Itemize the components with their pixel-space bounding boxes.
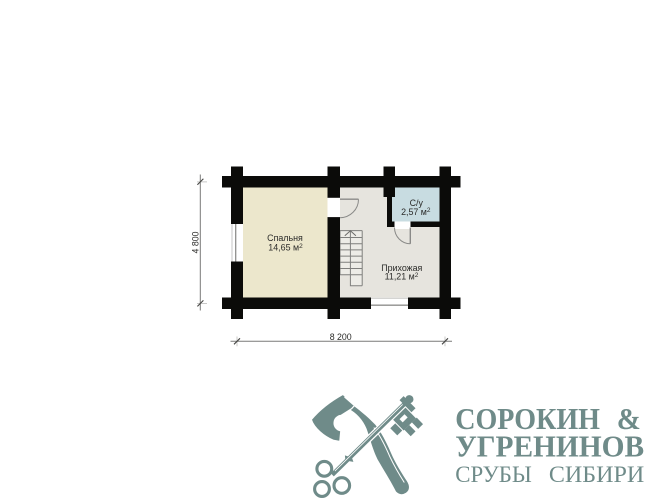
svg-text:Спальня: Спальня: [267, 233, 303, 243]
svg-text:11,21 м2: 11,21 м2: [385, 272, 419, 282]
svg-text:2,57 м2: 2,57 м2: [401, 207, 431, 217]
svg-text:14,65 м2: 14,65 м2: [268, 243, 303, 253]
svg-text:СИБИРИ: СИБИРИ: [549, 462, 644, 487]
svg-text:СРУБЫ: СРУБЫ: [455, 462, 532, 487]
svg-text:УГРЕНИНОВ: УГРЕНИНОВ: [455, 429, 644, 463]
svg-text:4 800: 4 800: [190, 231, 200, 253]
svg-text:8 200: 8 200: [330, 332, 352, 342]
